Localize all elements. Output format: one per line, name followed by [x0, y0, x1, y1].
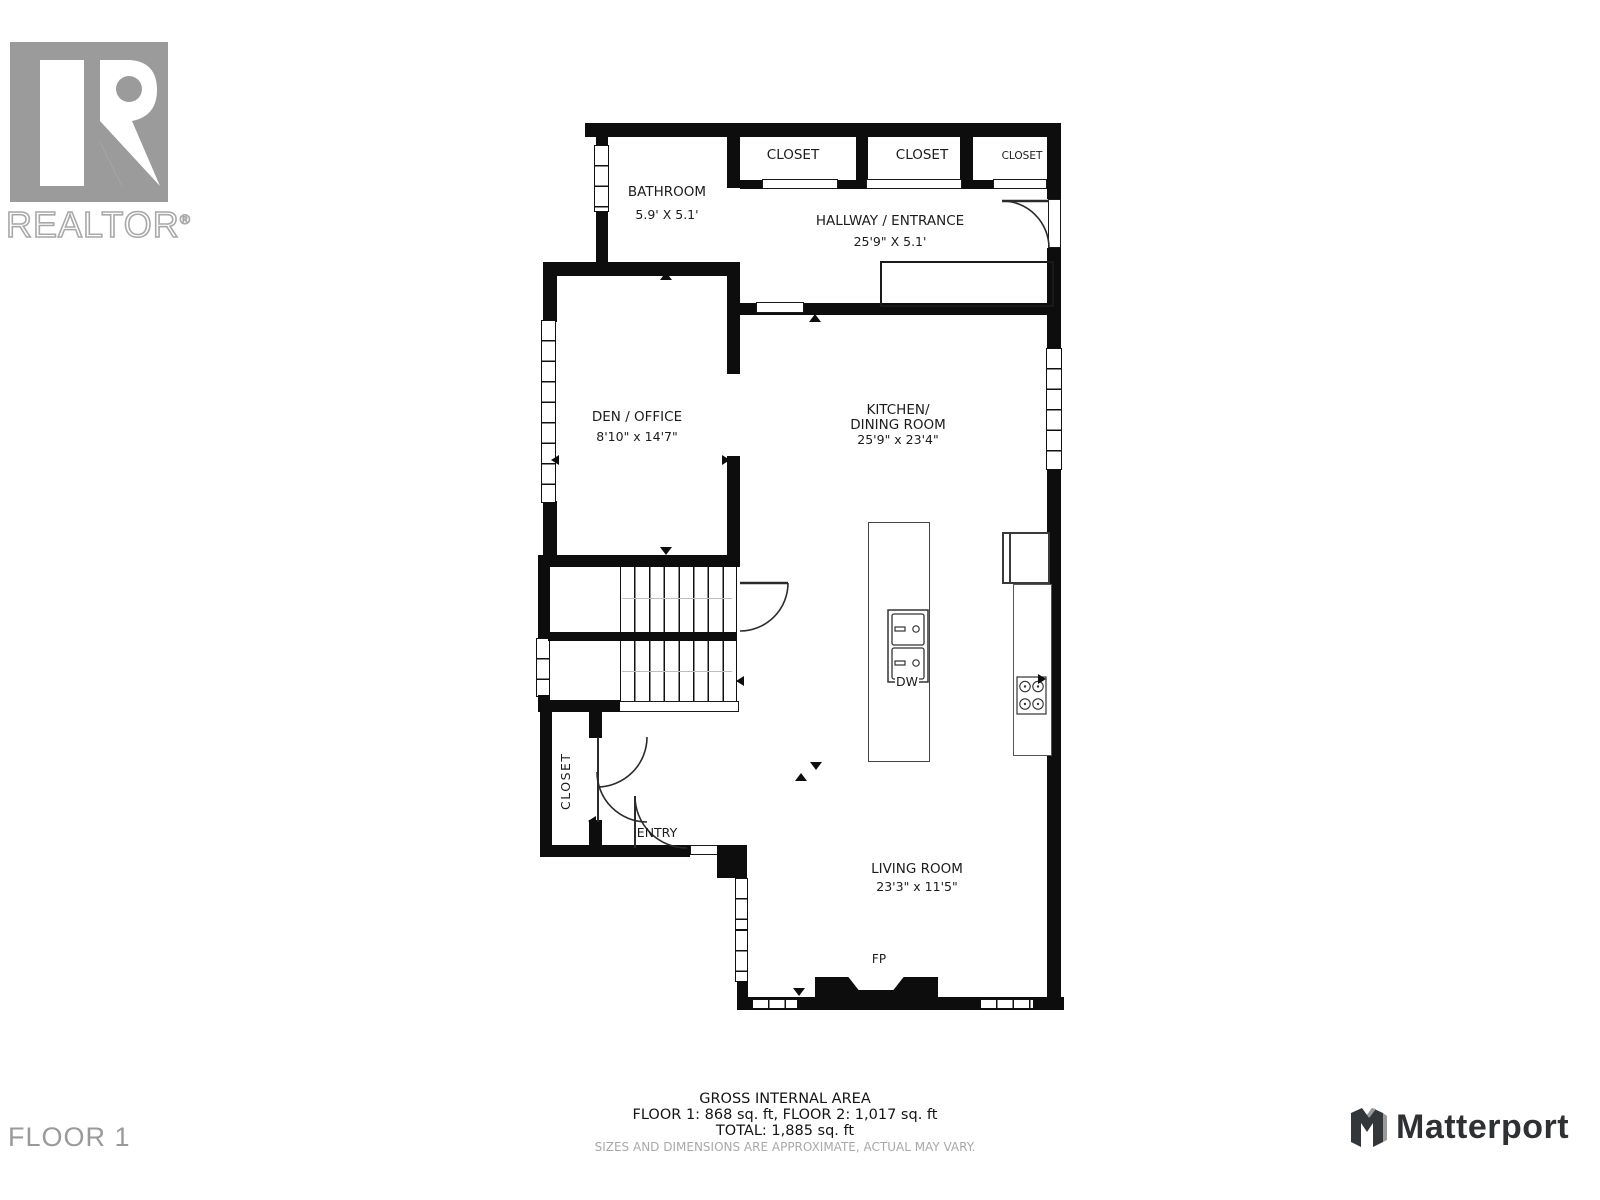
floor-number-label: FLOOR 1	[8, 1122, 131, 1153]
living-window	[735, 878, 748, 930]
wall-segment	[543, 276, 557, 322]
refrigerator-door-line	[1009, 534, 1011, 582]
stair-window	[536, 638, 550, 697]
room-label-entry-closet: CLOSET	[558, 748, 576, 814]
wall-segment	[727, 276, 740, 374]
kitchen-island	[868, 522, 930, 762]
wall-segment	[717, 845, 747, 878]
entry-doorway	[1048, 199, 1061, 248]
arrow-marker	[551, 455, 559, 465]
den-window	[541, 320, 556, 503]
room-label-closet-1: CLOSET	[740, 148, 846, 163]
kitchen-opening	[756, 302, 804, 313]
stair-centerline	[622, 671, 732, 672]
room-dims-bathroom: 5.9' X 5.1'	[597, 208, 737, 222]
room-label-living: LIVING ROOM	[847, 862, 987, 877]
realtor-r-icon	[10, 42, 168, 202]
closet-opening	[866, 179, 962, 189]
kitchen-window	[1046, 348, 1062, 470]
wall-segment	[727, 456, 740, 557]
wall-segment	[589, 712, 602, 738]
room-label-closet-3: CLOSET	[993, 151, 1051, 163]
wall-segment	[543, 501, 557, 557]
hallway-floor-outline	[880, 261, 1054, 307]
matterport-wordmark: Matterport	[1396, 1108, 1569, 1147]
floorplan-page: REALTOR®	[0, 0, 1600, 1200]
wall-segment	[538, 555, 740, 567]
disclaimer-text: SIZES AND DIMENSIONS ARE APPROXIMATE, AC…	[485, 1140, 1085, 1154]
room-label-bathroom: BATHROOM	[597, 185, 737, 200]
room-dims-living: 23'3" x 11'5"	[847, 880, 987, 894]
arrow-marker	[660, 547, 672, 555]
fireplace-label: FP	[866, 953, 892, 966]
room-label-entry: ENTRY	[627, 826, 687, 840]
living-window	[735, 930, 748, 982]
arrow-marker	[809, 314, 821, 322]
floor-areas-line: FLOOR 1: 868 sq. ft, FLOOR 2: 1,017 sq. …	[485, 1107, 1085, 1123]
wall-segment	[585, 123, 1061, 137]
front-door-sidelite	[690, 845, 718, 855]
arrow-marker	[588, 816, 596, 826]
wall-segment	[538, 567, 550, 640]
arrow-marker	[793, 988, 805, 996]
arrow-marker	[660, 272, 672, 280]
registered-mark-icon: ®	[180, 211, 191, 227]
kitchen-counter	[1013, 584, 1052, 756]
stair-bottom-edge	[618, 701, 739, 712]
arrow-marker	[795, 773, 807, 781]
stair-centerline	[622, 598, 732, 599]
arrow-marker	[736, 676, 744, 686]
closet-opening	[762, 179, 838, 189]
bathroom-window	[594, 145, 609, 212]
wall-segment	[540, 712, 552, 857]
room-label-den: DEN / OFFICE	[567, 410, 707, 425]
room-label-kitchen-2: DINING ROOM	[828, 418, 968, 433]
matterport-icon	[1347, 1107, 1387, 1148]
wall-segment	[727, 123, 740, 188]
living-window-bottom	[752, 999, 798, 1009]
room-label-hallway: HALLWAY / ENTRANCE	[790, 214, 990, 229]
room-label-kitchen-1: KITCHEN/	[828, 403, 968, 418]
stair-flight-upper	[620, 567, 737, 632]
wall-segment	[548, 632, 737, 641]
room-dims-kitchen: 25'9" x 23'4"	[828, 433, 968, 447]
wall-segment	[543, 262, 740, 276]
realtor-wordmark: REALTOR®	[6, 204, 191, 246]
room-dims-den: 8'10" x 14'7"	[567, 430, 707, 444]
room-dims-hallway: 25'9" X 5.1'	[790, 235, 990, 249]
arrow-marker	[810, 762, 822, 770]
dishwasher-label: DW	[895, 674, 919, 689]
arrow-marker	[722, 455, 730, 465]
realtor-logo	[10, 42, 168, 202]
arrow-marker	[1038, 674, 1046, 684]
gross-area-title: GROSS INTERNAL AREA	[485, 1091, 1085, 1107]
total-area-line: TOTAL: 1,885 sq. ft	[485, 1123, 1085, 1139]
closet-opening	[993, 179, 1047, 189]
room-label-closet-2: CLOSET	[866, 148, 978, 163]
living-window-bottom	[980, 999, 1034, 1009]
wall-segment	[540, 700, 620, 712]
wall-segment	[540, 845, 690, 857]
